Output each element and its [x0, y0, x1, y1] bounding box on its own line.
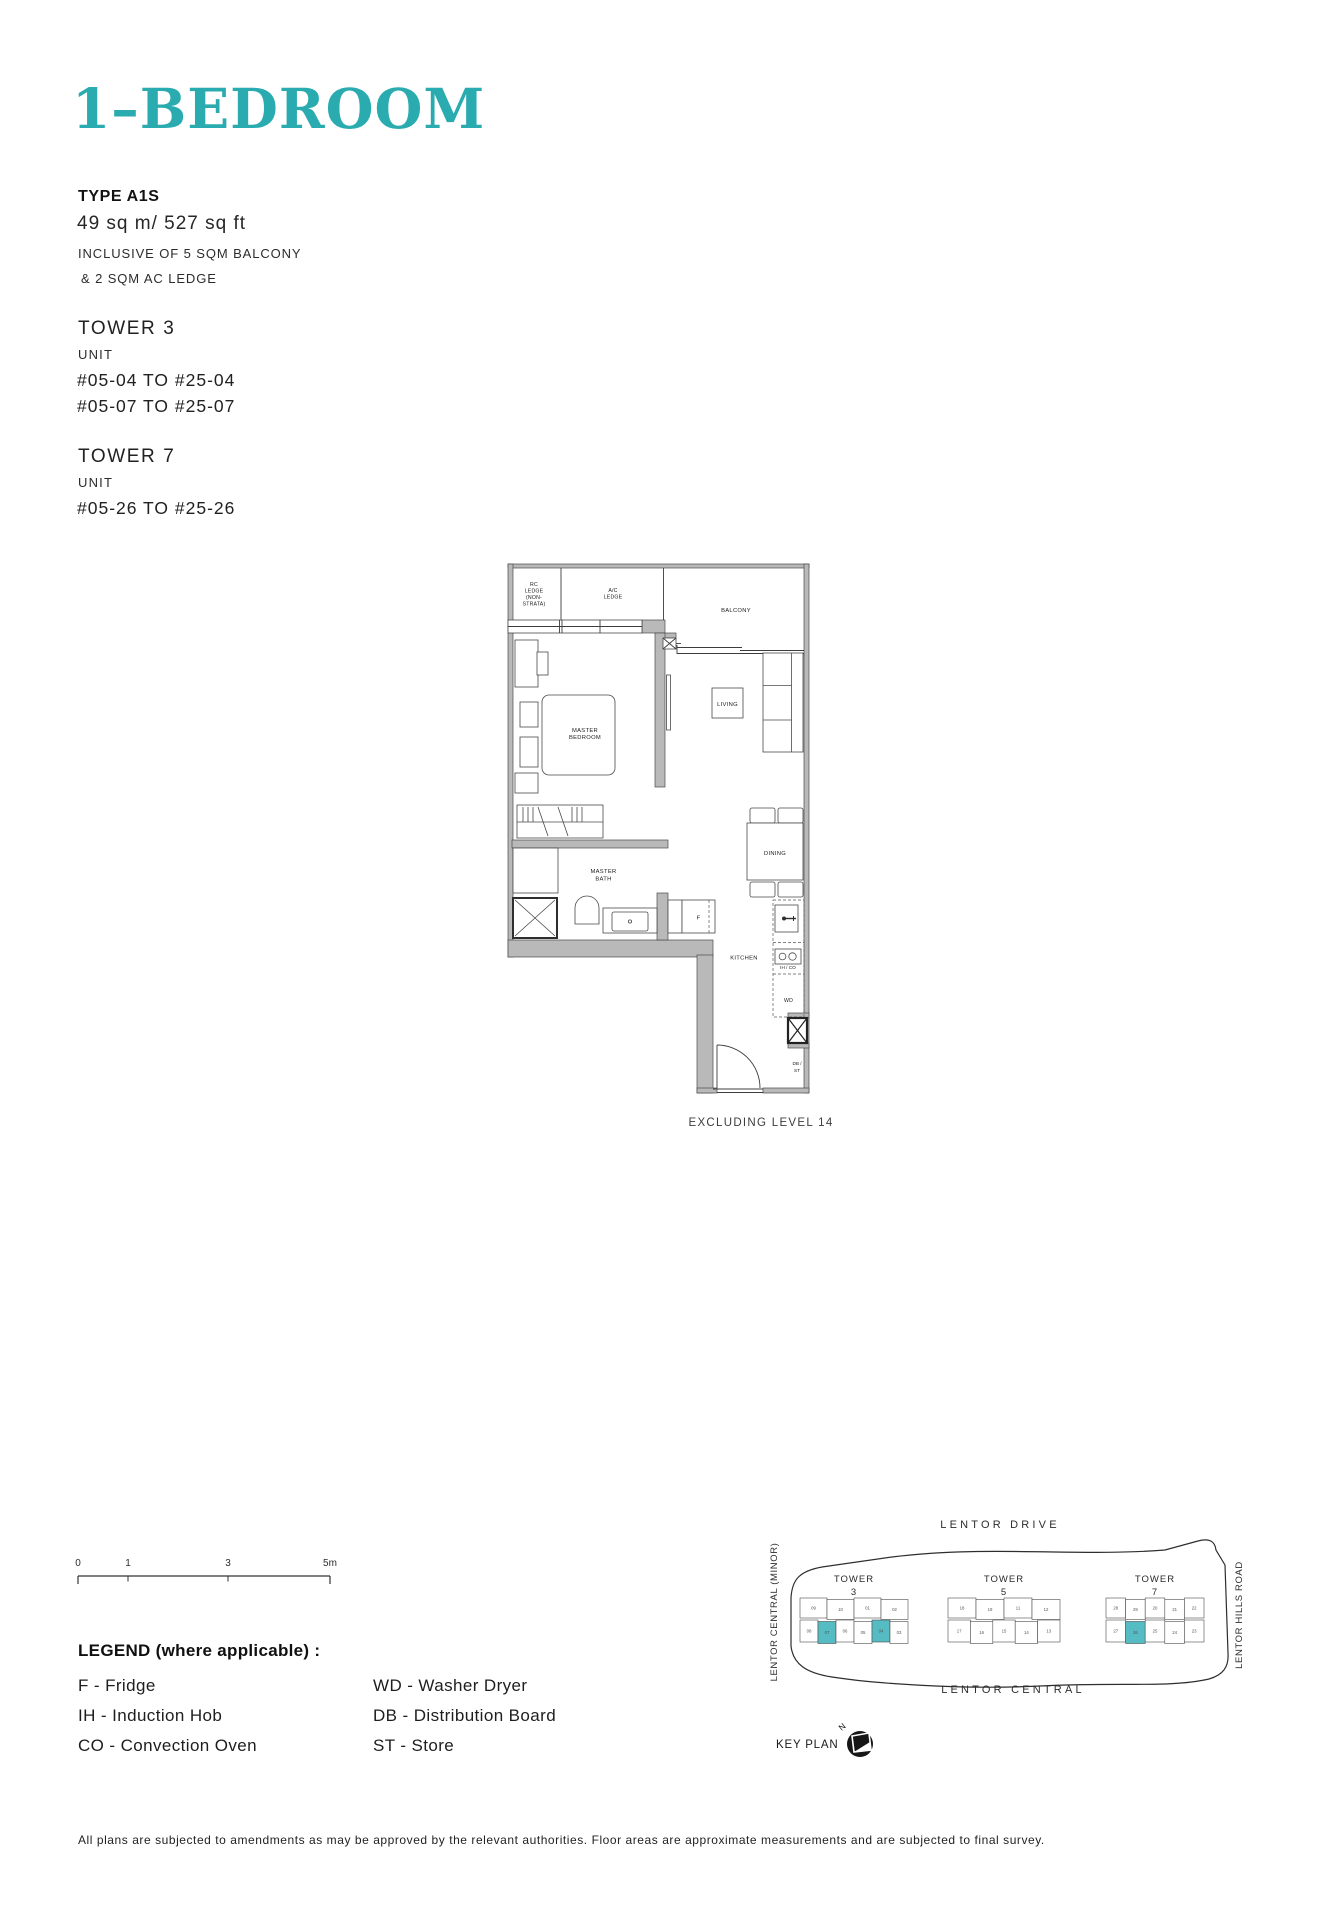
- tower-3-units-line-1: #05-04 TO #25-04: [77, 370, 235, 391]
- scale-tick-5m: 5m: [323, 1558, 337, 1569]
- unit-number: 22: [1192, 1606, 1197, 1611]
- tower-label: TOWER: [1135, 1574, 1175, 1585]
- keyplan-tower-7: TOWER728292021222726252423: [1106, 1574, 1204, 1644]
- label-washer-dryer: WD: [784, 998, 793, 1004]
- tower-label: TOWER: [834, 1574, 874, 1585]
- unit-number: 21: [1172, 1607, 1177, 1612]
- unit-number: 08: [807, 1629, 812, 1634]
- unit-number: 19: [988, 1607, 993, 1612]
- bedroom-sliding-door: [667, 675, 671, 730]
- tower-3-unit-label: UNIT: [78, 347, 113, 362]
- unit-number: 28: [1113, 1606, 1118, 1611]
- inclusive-line-1: INCLUSIVE OF 5 SQM BALCONY: [78, 246, 302, 261]
- unit-number: 01: [865, 1606, 870, 1611]
- label-master-bath-2: BATH: [595, 877, 611, 883]
- unit-number: 17: [957, 1629, 962, 1634]
- keyplan-towers: TOWER309100102080706050403TOWER518191112…: [800, 1574, 1204, 1644]
- unit-number: 11: [1016, 1606, 1021, 1611]
- shaft-icon: [788, 1018, 807, 1043]
- tower-7-units-line-1: #05-26 TO #25-26: [77, 498, 235, 519]
- label-master-bedroom: MASTER: [572, 728, 598, 734]
- tower-7-name: TOWER 7: [78, 446, 175, 468]
- legend-item: F - Fridge: [78, 1676, 257, 1696]
- master-bath-fixtures: [513, 848, 657, 938]
- excluding-level-note: EXCLUDING LEVEL 14: [656, 1117, 866, 1129]
- label-living: LIVING: [717, 702, 738, 708]
- unit-number: 26: [1133, 1630, 1138, 1635]
- road-lentor-drive: LENTOR DRIVE: [940, 1519, 1060, 1531]
- wardrobe: [517, 805, 603, 838]
- unit-number: 18: [960, 1606, 965, 1611]
- legend-item: CO - Convection Oven: [78, 1736, 257, 1756]
- page-title: 1–BEDROOM: [72, 76, 485, 141]
- disclaimer-text: All plans are subjected to amendments as…: [78, 1833, 1288, 1847]
- road-lentor-hills-road: LENTOR HILLS ROAD: [1234, 1561, 1245, 1669]
- tower-number: 3: [851, 1587, 857, 1598]
- label-st: ST: [794, 1068, 800, 1073]
- unit-number: 04: [879, 1629, 884, 1634]
- label-ac-ledge: A/C: [608, 588, 617, 594]
- north-label: N: [837, 1721, 848, 1733]
- scale-tick-3: 3: [225, 1558, 231, 1569]
- road-lentor-central: LENTOR CENTRAL: [941, 1684, 1085, 1696]
- fridge-and-cabinet: [668, 900, 715, 933]
- label-hob-oven: IH / CO: [780, 965, 796, 970]
- label-balcony: BALCONY: [721, 608, 751, 614]
- north-compass-icon: N: [837, 1721, 873, 1757]
- unit-number: 02: [892, 1607, 897, 1612]
- unit-number: 06: [843, 1629, 848, 1634]
- road-lentor-central-minor: LENTOR CENTRAL (MINOR): [769, 1543, 780, 1682]
- entrance-door: [717, 1045, 760, 1088]
- unit-number: 05: [861, 1630, 866, 1635]
- unit-number: 09: [811, 1606, 816, 1611]
- tower-number: 7: [1152, 1587, 1158, 1598]
- unit-type-label: TYPE A1S: [78, 188, 160, 206]
- keyplan-title: KEY PLAN: [776, 1739, 838, 1751]
- legend-column-right: WD - Washer DryerDB - Distribution Board…: [373, 1676, 556, 1766]
- floorplan-brochure-page: 1–BEDROOM TYPE A1S 49 sq m/ 527 sq ft IN…: [0, 0, 1320, 1920]
- legend-column-left: F - FridgeIH - Induction HobCO - Convect…: [78, 1676, 257, 1766]
- label-rc-ledge-2: LEDGE: [525, 589, 544, 595]
- master-bedroom-furniture: [515, 640, 615, 793]
- unit-number: 07: [825, 1630, 830, 1635]
- tower-3-units-line-2: #05-07 TO #25-07: [77, 396, 235, 417]
- label-master-bath: MASTER: [591, 869, 617, 875]
- label-rc-ledge-3: (NON-: [526, 595, 542, 601]
- label-rc-ledge: RC: [530, 582, 538, 588]
- unit-number: 15: [1002, 1629, 1007, 1634]
- legend-title: LEGEND (where applicable) :: [78, 1641, 320, 1661]
- unit-number: 24: [1172, 1630, 1177, 1635]
- legend-item: WD - Washer Dryer: [373, 1676, 556, 1696]
- unit-number: 23: [1192, 1629, 1197, 1634]
- keyplan-tower-5: TOWER5181911121716151413: [948, 1574, 1060, 1644]
- tower-3-name: TOWER 3: [78, 318, 175, 340]
- scale-tick-1: 1: [125, 1558, 131, 1569]
- inclusive-line-2: & 2 SQM AC LEDGE: [81, 271, 217, 286]
- unit-number: 10: [838, 1607, 843, 1612]
- legend-item: DB - Distribution Board: [373, 1706, 556, 1726]
- unit-number: 27: [1113, 1629, 1118, 1634]
- label-master-bedroom-2: BEDROOM: [569, 735, 601, 741]
- legend-item: IH - Induction Hob: [78, 1706, 257, 1726]
- scale-bar: 0 1 3 5m: [68, 1550, 348, 1590]
- label-rc-ledge-4: STRATA): [523, 602, 546, 608]
- floor-plan-drawing: RC LEDGE (NON- STRATA) A/C LEDGE BALCONY…: [500, 555, 820, 1115]
- unit-number: 13: [1046, 1629, 1051, 1634]
- unit-number: 12: [1044, 1607, 1049, 1612]
- key-plan: LENTOR DRIVE LENTOR CENTRAL LENTOR CENTR…: [740, 1505, 1265, 1795]
- label-fridge: F: [697, 916, 701, 922]
- legend-item: ST - Store: [373, 1736, 556, 1756]
- tower-label: TOWER: [984, 1574, 1024, 1585]
- scale-tick-0: 0: [75, 1558, 81, 1569]
- label-dining: DINING: [764, 851, 786, 857]
- unit-number: 16: [979, 1630, 984, 1635]
- label-kitchen: KITCHEN: [730, 956, 758, 962]
- unit-number: 25: [1153, 1629, 1158, 1634]
- unit-area: 49 sq m/ 527 sq ft: [77, 213, 246, 235]
- label-ac-ledge-2: LEDGE: [604, 595, 623, 601]
- tower-number: 5: [1001, 1587, 1007, 1598]
- keyplan-tower-3: TOWER309100102080706050403: [800, 1574, 908, 1644]
- tower-7-unit-label: UNIT: [78, 475, 113, 490]
- unit-number: 20: [1153, 1606, 1158, 1611]
- unit-number: 29: [1133, 1607, 1138, 1612]
- unit-number: 03: [897, 1630, 902, 1635]
- label-db: DB /: [792, 1061, 802, 1066]
- unit-number: 14: [1024, 1630, 1029, 1635]
